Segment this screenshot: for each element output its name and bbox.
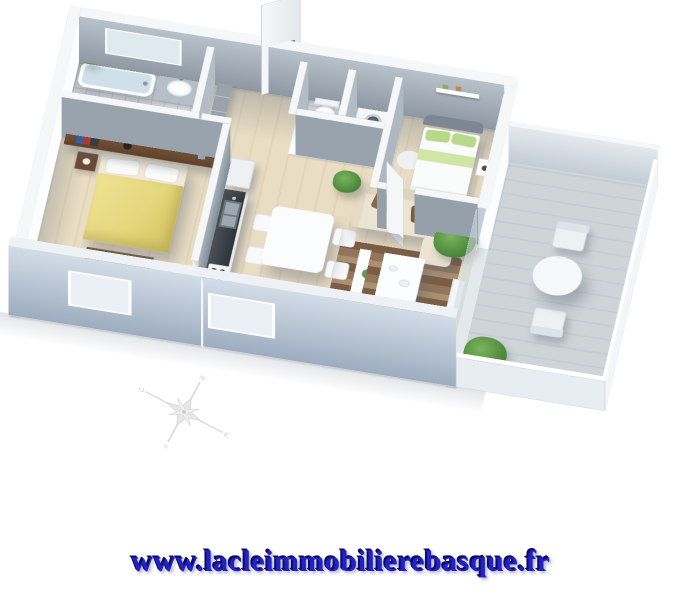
compass-east-label: E	[222, 430, 231, 440]
shelf-decor	[443, 85, 449, 90]
bathroom-window	[105, 28, 181, 66]
agency-website-url[interactable]: www.lacleimmobilierebasque.fr	[0, 545, 682, 579]
dining-chair	[324, 260, 350, 281]
terrace-chair	[551, 220, 589, 251]
shelf-decor	[456, 86, 462, 92]
table-plant	[361, 268, 376, 279]
bed2-pillow-green	[450, 133, 477, 149]
decor-disc	[122, 142, 132, 150]
books	[75, 134, 100, 147]
facade-window-1	[68, 270, 131, 315]
terrace-chair	[529, 307, 567, 338]
bedside-lamp	[82, 158, 91, 165]
table-dish	[398, 279, 411, 288]
floorplan-scene	[8, 52, 666, 411]
compass-south-label: S	[162, 442, 170, 451]
bed2-throw	[417, 148, 475, 168]
compass-west-label: O	[137, 384, 147, 394]
kitchen-sink	[219, 200, 242, 229]
table-dish	[388, 265, 399, 273]
sink-divider	[223, 213, 236, 217]
bed2-pillow-green	[425, 129, 451, 143]
kitchen-faucet	[232, 196, 236, 200]
bed1-duvet-yellow	[82, 173, 183, 253]
facade-window-2	[208, 293, 275, 339]
page-background: N E S O www.lacleimmobilierebasque.fr	[0, 0, 682, 600]
washbasin	[165, 79, 193, 98]
bathtub-tap	[143, 81, 149, 86]
bed1-nightstand	[74, 151, 99, 171]
compass-north-label: N	[198, 373, 208, 383]
dining-chair	[331, 227, 357, 248]
